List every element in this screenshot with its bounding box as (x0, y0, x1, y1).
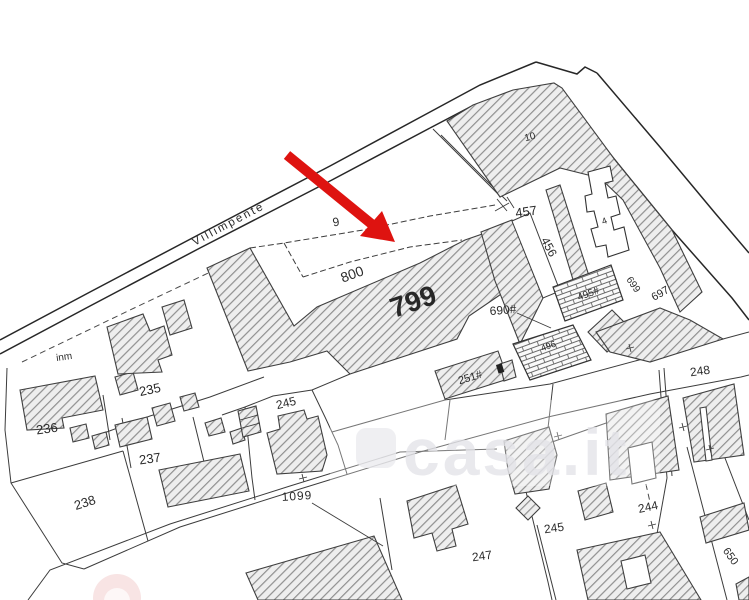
svg-text:1099: 1099 (281, 488, 313, 504)
svg-text:247: 247 (471, 548, 493, 565)
svg-text:690#: 690# (489, 302, 517, 318)
svg-text:casa.it: casa.it (403, 415, 629, 489)
svg-text:245: 245 (543, 520, 565, 537)
svg-text:236: 236 (35, 420, 59, 438)
svg-text:inm: inm (55, 351, 72, 364)
svg-text:457: 457 (514, 203, 538, 221)
svg-text:248: 248 (689, 363, 711, 380)
svg-text:237: 237 (138, 450, 162, 468)
